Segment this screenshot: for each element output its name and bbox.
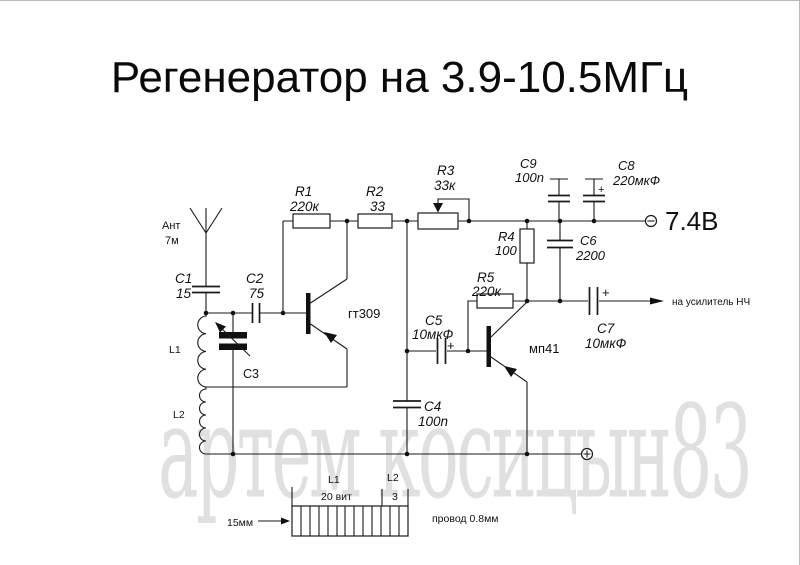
circuit-schematic: Ант 7м C1 15 C2 75 C3 L1 L2 R1 220к R2 [0, 1, 800, 565]
c7-polarity-plus: + [602, 285, 610, 300]
capacitor-c2-value: 75 [249, 286, 265, 301]
capacitor-c8 [583, 196, 605, 202]
winding-l2-label: L2 [387, 472, 399, 484]
transistor-q1 [283, 279, 347, 349]
dimension-arrow-icon [281, 518, 290, 525]
capacitor-c7 [590, 287, 598, 315]
capacitor-c9-value: 100n [515, 170, 544, 185]
resistor-r3-ref: R3 [437, 163, 455, 178]
capacitor-c6-value: 2200 [575, 248, 606, 263]
capacitor-c7-value: 10мкФ [585, 336, 627, 351]
capacitor-c1 [192, 287, 220, 293]
resistor-r4-ref: R4 [498, 229, 515, 244]
transistor-q2 [486, 302, 527, 382]
c5-polarity-plus: + [447, 338, 455, 353]
output-destination-label: на усилитель НЧ [672, 297, 750, 308]
capacitor-c9-ref: C9 [520, 156, 537, 171]
resistor-r5-ref: R5 [477, 270, 495, 285]
antenna-length-label: 7м [165, 235, 179, 247]
resistor-r5-value: 220к [471, 284, 502, 299]
transistor-q2-label: мп41 [529, 341, 559, 356]
capacitor-c8-ref: C8 [618, 158, 635, 173]
capacitor-c2-ref: C2 [246, 271, 264, 286]
winding-l1-turns: 20 вит [321, 491, 352, 503]
capacitor-c2 [253, 303, 260, 323]
capacitor-c1-value: 15 [176, 286, 192, 301]
transistor-q1-label: гт309 [348, 306, 380, 321]
q2-emitter-arrow-icon [504, 366, 517, 377]
supply-voltage-label: 7.4В [665, 206, 719, 236]
c8-polarity-plus: + [598, 184, 604, 196]
resistor-r2-ref: R2 [366, 184, 384, 199]
capacitor-c8-value: 220мкФ [612, 173, 660, 188]
resistor-r1-value: 220к [289, 199, 320, 214]
capacitor-c6-ref: C6 [580, 233, 597, 248]
resistor-r3-value: 33к [434, 178, 456, 193]
wire-c9-column [550, 179, 568, 221]
capacitor-c6 [547, 241, 573, 248]
junction-dots [204, 219, 597, 457]
inductor-l2-label: L2 [173, 409, 185, 421]
resistor-r1-ref: R1 [295, 184, 312, 199]
capacitor-c9 [548, 196, 570, 202]
antenna-icon [190, 208, 222, 233]
capacitor-c7-ref: C7 [597, 321, 615, 336]
schematic-page: артем косицын83 Регенератор на 3.9-10.5М… [0, 0, 800, 565]
antenna-label: Ант [162, 220, 180, 232]
supply-negative-terminal [646, 216, 657, 227]
potentiometer-r3 [418, 203, 458, 229]
capacitor-c5-ref: C5 [425, 313, 443, 328]
inductor-l1-label: L1 [169, 344, 181, 356]
capacitor-c3-ref: C3 [243, 367, 259, 381]
capacitor-c4-value: 100n [418, 414, 448, 429]
winding-wire-spec: провод 0.8мм [432, 513, 499, 525]
resistor-r1 [293, 214, 330, 228]
winding-former-diameter: 15мм [227, 517, 253, 529]
capacitor-c4-ref: C4 [424, 399, 441, 414]
r3-wiper-arrow-icon [433, 203, 443, 213]
winding-l2-turns: 3 [392, 491, 398, 503]
capacitor-c4 [393, 401, 421, 408]
capacitor-c1-ref: C1 [175, 271, 192, 286]
resistor-r2 [358, 214, 392, 228]
inductor-l1-l2-coil [198, 313, 206, 454]
resistor-r2-value: 33 [370, 199, 386, 214]
resistor-r4 [520, 229, 534, 263]
output-arrow-icon [650, 298, 664, 305]
resistor-r4-value: 100 [495, 243, 517, 258]
ground-positive-terminal [582, 449, 593, 460]
winding-l1-label: L1 [328, 474, 340, 486]
